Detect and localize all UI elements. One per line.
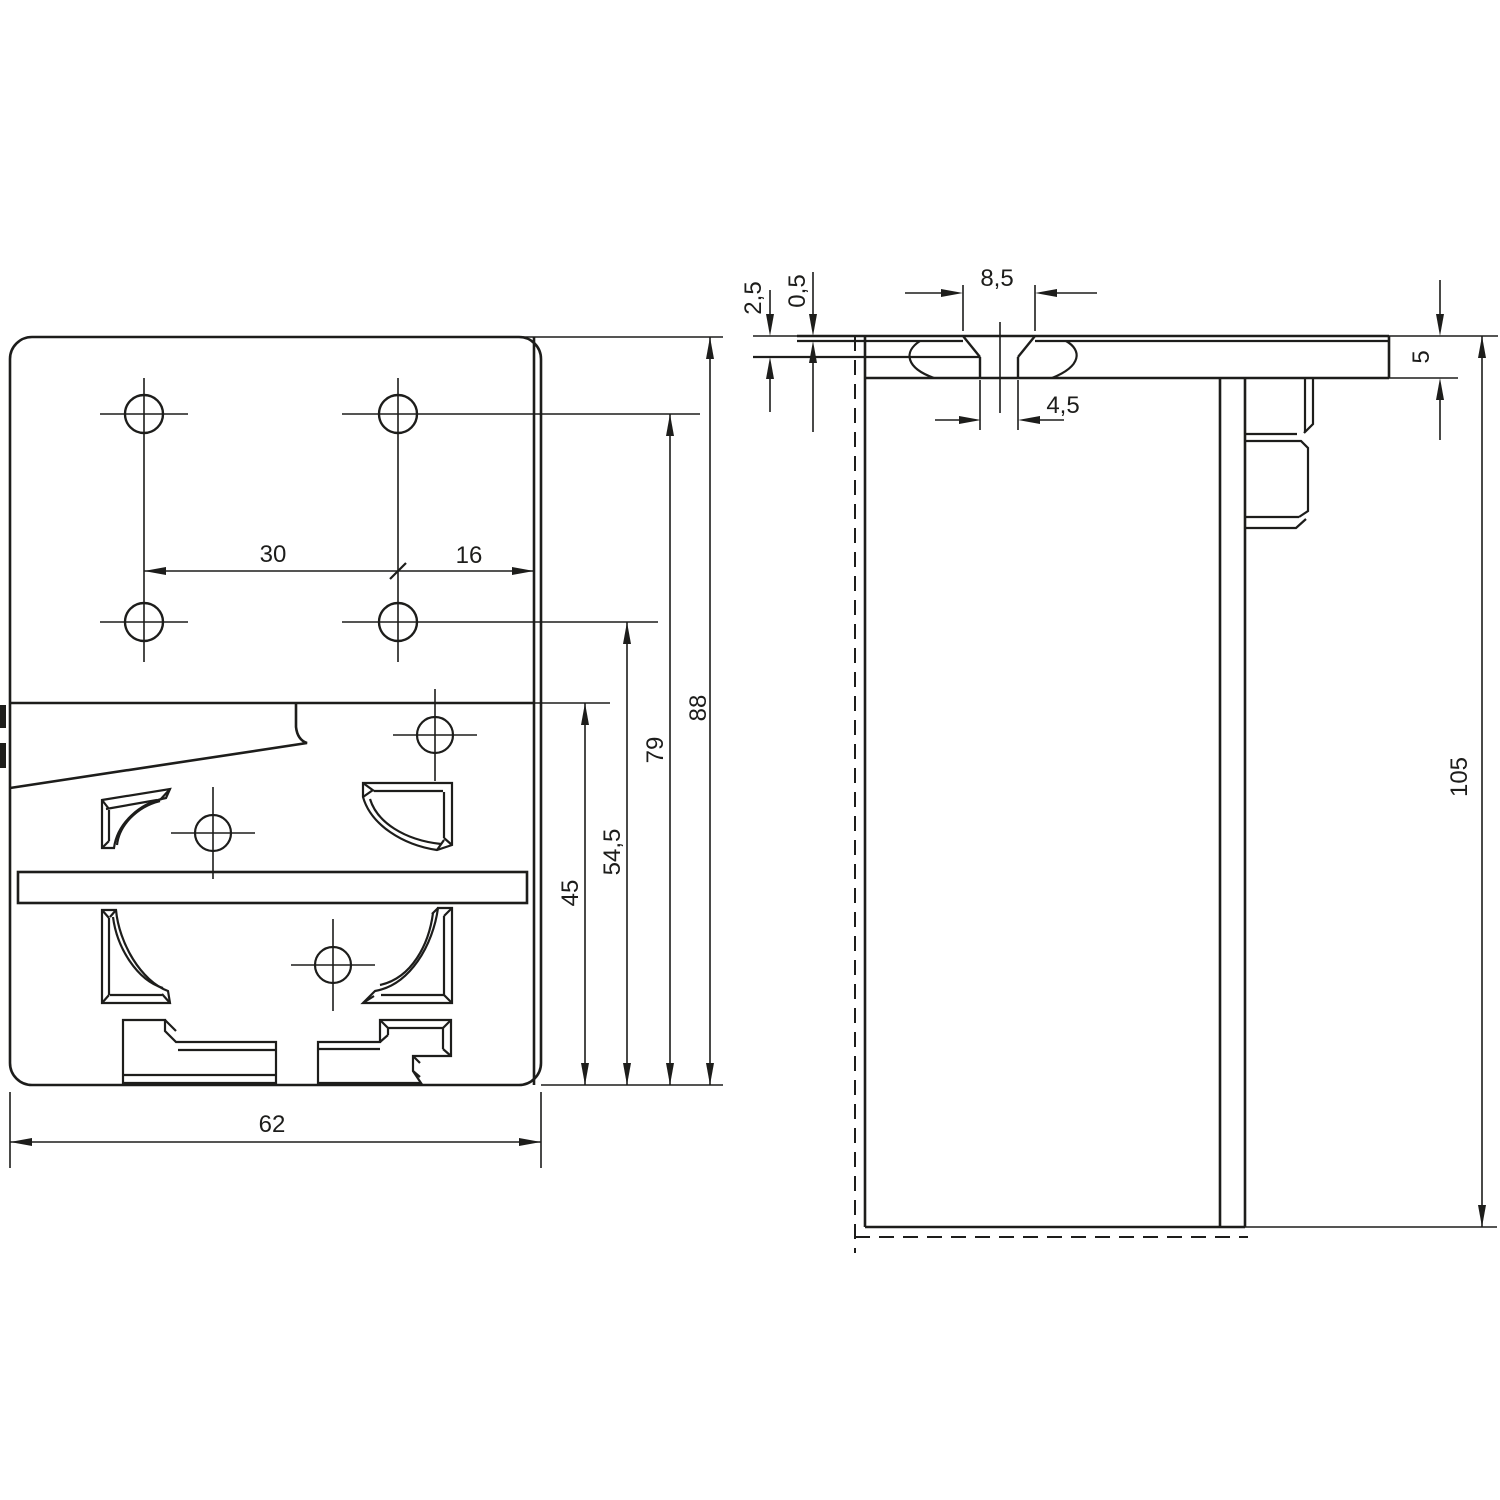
- front-view: 30 16 45 54,5 79 88 62: [0, 337, 723, 1168]
- technical-drawing: 30 16 45 54,5 79 88 62: [0, 0, 1500, 1500]
- corner-gusset-top-right: [363, 783, 452, 850]
- dim-label-105: 105: [1446, 757, 1473, 797]
- dim-label-88: 88: [685, 695, 712, 722]
- side-dimension-lines: [770, 272, 1482, 1227]
- snap-clip: [1245, 378, 1313, 528]
- dim-label-0-5: 0,5: [784, 274, 811, 307]
- side-view: 2,5 0,5 8,5 4,5 5 105: [740, 265, 1498, 1253]
- front-arrowheads: [10, 337, 714, 1146]
- dim-label-45: 45: [557, 880, 584, 907]
- dim-label-62: 62: [259, 1111, 286, 1138]
- drawing-sheet: 30 16 45 54,5 79 88 62: [0, 0, 1500, 1500]
- corner-gusset-bottom-left: [102, 910, 170, 1003]
- cross-bar: [18, 872, 527, 903]
- slot-right: [318, 1020, 451, 1083]
- edge-mark: [0, 705, 6, 728]
- hole-centerlines: [100, 378, 700, 662]
- side-arrowheads: [766, 289, 1486, 1227]
- corner-gusset-top-left: [102, 789, 170, 848]
- dim-label-4-5: 4,5: [1046, 392, 1079, 419]
- dim-label-2-5: 2,5: [740, 281, 767, 314]
- dim-label-30: 30: [260, 541, 287, 568]
- front-plate-outline: [10, 337, 541, 1085]
- dim-label-16: 16: [456, 542, 483, 569]
- dim-label-5: 5: [1408, 350, 1435, 363]
- front-dimension-lines: [10, 337, 710, 1142]
- hidden-lines: [855, 336, 1248, 1253]
- dim-label-8-5: 8,5: [980, 265, 1013, 292]
- corner-gusset-bottom-right: [363, 908, 452, 1003]
- side-body: [865, 336, 1245, 1227]
- lever-arm: [10, 703, 307, 788]
- dim-label-79: 79: [642, 737, 669, 764]
- dim-label-54-5: 54,5: [599, 829, 626, 876]
- edge-mark: [0, 743, 6, 768]
- slot-left: [123, 1020, 276, 1083]
- front-extension-lines: [10, 337, 723, 1168]
